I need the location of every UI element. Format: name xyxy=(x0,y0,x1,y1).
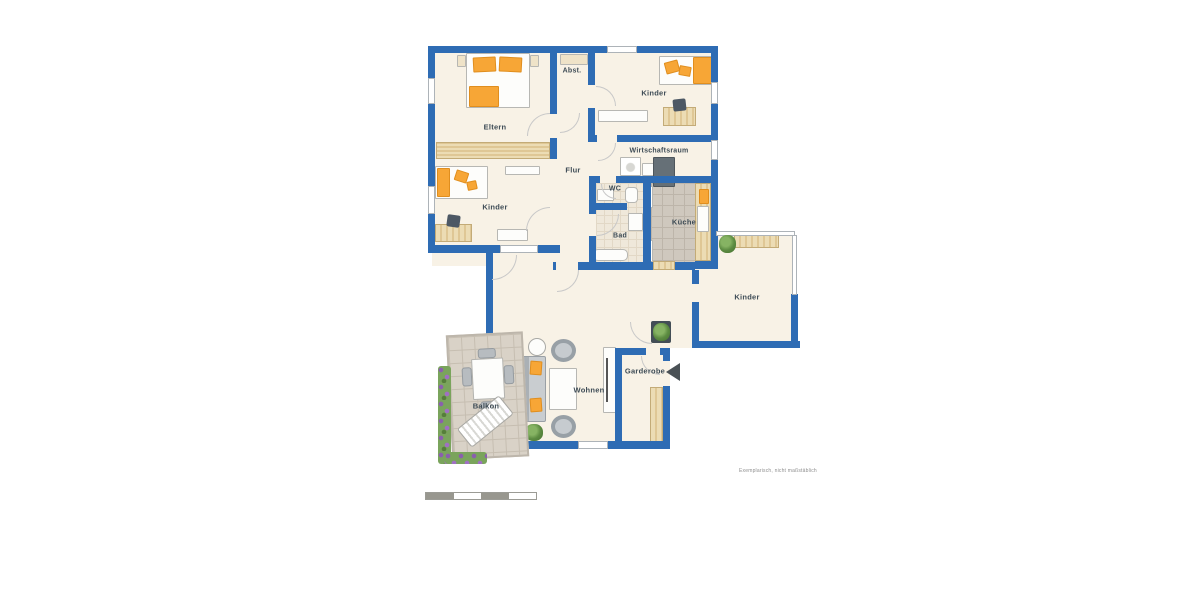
toilet xyxy=(625,187,638,203)
balcony-chair xyxy=(503,365,514,384)
wall-segment xyxy=(663,348,670,361)
room-label-bad: Bad xyxy=(613,233,627,240)
wall-segment xyxy=(692,270,699,284)
wall-segment xyxy=(695,261,718,269)
wall-segment xyxy=(553,262,556,270)
window-wall xyxy=(792,235,797,295)
room-label-wirtschaftsraum: Wirtschaftsraum xyxy=(630,148,689,155)
window xyxy=(711,140,718,160)
wall-segment xyxy=(589,183,596,214)
wall-segment xyxy=(692,341,800,348)
room-label-kueche: Küche xyxy=(672,218,696,226)
scale-bar-segment xyxy=(481,493,509,499)
desk-chair xyxy=(446,214,461,228)
wall-segment xyxy=(663,386,670,441)
wall-segment xyxy=(615,348,622,448)
scale-bar-segment xyxy=(454,493,482,499)
wall-segment xyxy=(578,262,653,270)
flower-bed xyxy=(445,452,487,464)
room-label-kinder-left: Kinder xyxy=(482,203,507,211)
sofa-cushion xyxy=(530,361,543,376)
sideboard xyxy=(734,235,779,248)
wall-segment xyxy=(596,203,627,210)
room-label-abstellraum: Abst. xyxy=(563,68,582,75)
balcony xyxy=(446,331,529,460)
room-label-kinder-top: Kinder xyxy=(641,89,666,97)
wardrobe xyxy=(650,387,663,444)
armchair xyxy=(551,339,576,362)
plant xyxy=(653,323,670,341)
sofa-cushion xyxy=(530,398,543,413)
bathtub xyxy=(593,249,628,261)
wall-segment xyxy=(589,236,596,263)
window xyxy=(607,46,637,53)
wall-segment xyxy=(617,135,718,142)
room-label-garderobe: Garderobe xyxy=(625,367,665,375)
wall-segment xyxy=(616,176,718,183)
stove xyxy=(699,189,709,204)
window xyxy=(500,245,538,253)
shelf xyxy=(505,166,540,175)
blanket xyxy=(469,86,499,107)
room-label-flur: Flur xyxy=(565,166,580,174)
wall-segment xyxy=(428,46,718,53)
window xyxy=(428,78,435,104)
wall-segment xyxy=(622,348,646,355)
wall-segment xyxy=(550,138,557,159)
pillow xyxy=(437,168,450,197)
scale-bar xyxy=(425,492,537,500)
room-label-eltern: Eltern xyxy=(484,123,507,131)
wall-segment xyxy=(550,52,557,114)
room-label-balkon: Balkon xyxy=(473,402,500,410)
wall-segment xyxy=(428,245,560,253)
side-table xyxy=(528,338,546,356)
storage-shelf xyxy=(560,54,588,65)
nightstand xyxy=(457,55,466,67)
pillow xyxy=(473,56,497,72)
wall-segment xyxy=(588,52,595,85)
shelf xyxy=(598,110,648,122)
room-label-wohnen: Wohnen xyxy=(574,386,605,394)
scale-bar-segment xyxy=(426,493,454,499)
nightstand xyxy=(530,55,539,67)
pillow xyxy=(499,56,523,72)
wall-segment xyxy=(615,441,670,449)
floor-plan-canvas: Eltern Abst. Kinder Wirtschaftsraum Flur… xyxy=(0,0,1200,600)
wall-segment xyxy=(675,262,695,270)
wall-segment xyxy=(589,176,600,183)
blanket xyxy=(693,57,712,84)
window xyxy=(578,441,608,449)
washing-machine xyxy=(620,157,641,176)
desk-chair xyxy=(672,98,686,111)
wall-segment xyxy=(588,135,597,142)
entrance-arrow-icon xyxy=(666,363,680,381)
window xyxy=(711,82,718,104)
built-in-wardrobe xyxy=(436,142,550,159)
flower-bed xyxy=(438,366,451,464)
tv-screen xyxy=(606,358,608,402)
kitchen-sink xyxy=(697,206,709,232)
cushion xyxy=(678,65,692,77)
wall-segment xyxy=(791,294,798,348)
room-label-kinder-right: Kinder xyxy=(734,293,759,301)
wall-segment xyxy=(643,176,651,270)
scale-bar-segment xyxy=(509,493,537,499)
bathroom-sink xyxy=(628,213,643,231)
room-label-wc: WC xyxy=(609,186,621,193)
disclaimer-note: Exemplarisch, nicht maßstäblich xyxy=(739,468,817,474)
plant xyxy=(719,235,736,253)
window xyxy=(428,186,435,214)
kitchen-threshold xyxy=(653,261,675,270)
armchair xyxy=(551,415,576,438)
balcony-table xyxy=(471,357,505,400)
shelf xyxy=(497,229,528,241)
